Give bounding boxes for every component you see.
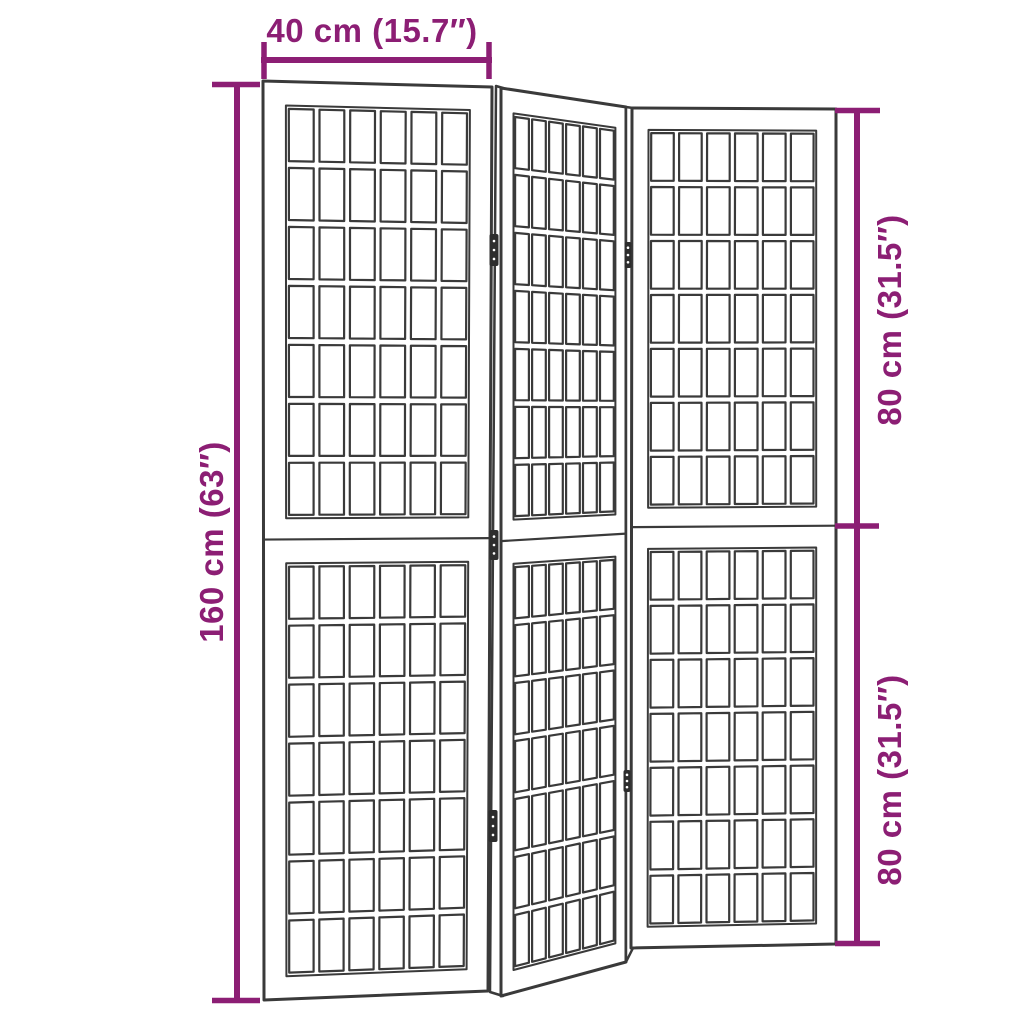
hinge-icon <box>625 242 632 268</box>
hinge-icon <box>490 234 499 266</box>
panel-seam <box>632 526 836 527</box>
total-height-dimension: 160 cm (63″) <box>193 82 260 1003</box>
lower-height-label: 80 cm (31.5″) <box>871 674 908 885</box>
width-dimension-label: 40 cm (15.7″) <box>266 12 477 49</box>
panel-right <box>626 107 836 962</box>
folding-screen <box>263 81 836 1000</box>
section-height-dimension: 80 cm (31.5″) 80 cm (31.5″) <box>835 110 908 944</box>
panel-left <box>263 81 492 1000</box>
hinge-icon <box>489 810 498 842</box>
hinge-icon <box>624 770 631 792</box>
diagram-canvas: 40 cm (15.7″) 160 cm (63″) 80 cm (31.5″)… <box>0 0 1024 1024</box>
panel-center <box>490 86 626 996</box>
total-height-label: 160 cm (63″) <box>193 441 230 643</box>
width-dimension: 40 cm (15.7″) <box>261 12 492 79</box>
hinge-icon <box>490 530 499 560</box>
panel-seam <box>263 538 490 539</box>
product-dimension-diagram: 40 cm (15.7″) 160 cm (63″) 80 cm (31.5″)… <box>0 0 1024 1024</box>
upper-height-label: 80 cm (31.5″) <box>871 214 908 425</box>
